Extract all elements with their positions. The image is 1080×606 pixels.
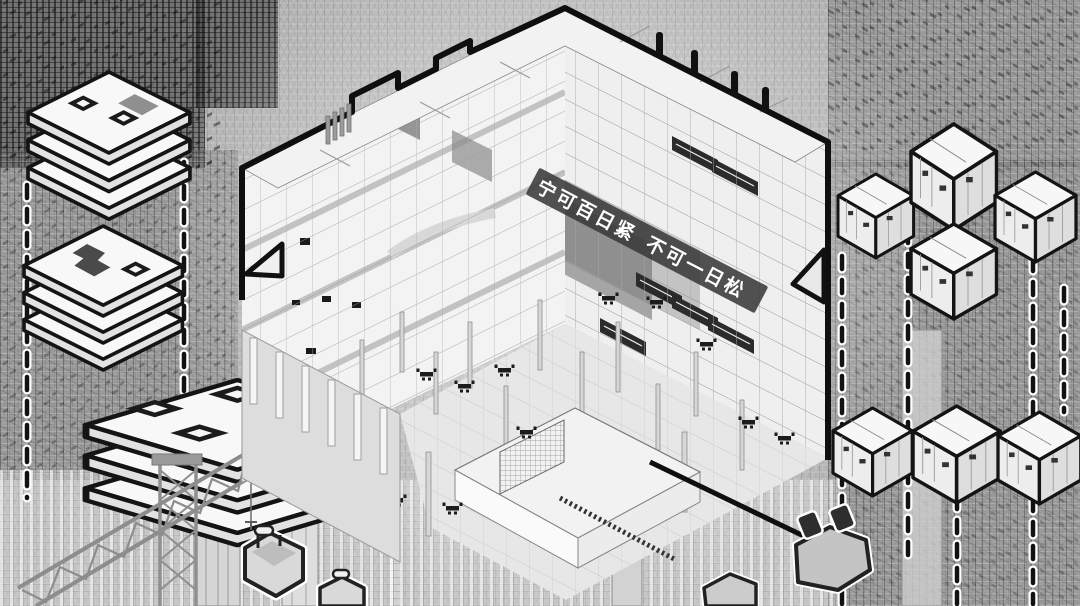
illustration-canvas: 宁可百日紧 不可一日松: [0, 0, 1080, 606]
axonometric-city-illustration: 宁可百日紧 不可一日松: [0, 0, 1080, 606]
lift-basket-b: [320, 570, 364, 606]
central-building: 宁可百日紧 不可一日松: [242, 8, 866, 600]
platform-b: [704, 574, 756, 606]
